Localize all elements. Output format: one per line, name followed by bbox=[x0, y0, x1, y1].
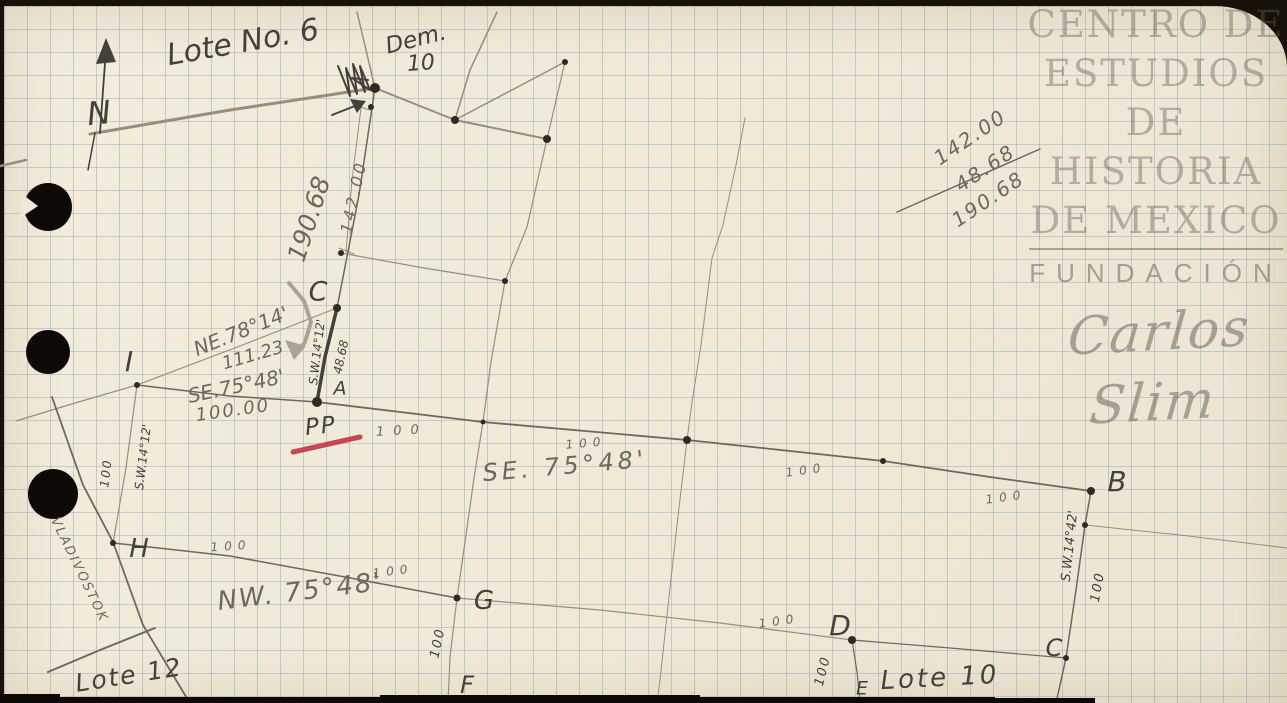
label-100-seg2: 100 bbox=[785, 461, 827, 479]
label-100-gd: 100 bbox=[758, 612, 800, 630]
label-lote-no-6: Lote No. 6 bbox=[165, 15, 322, 71]
label-100-hg2: 100 bbox=[372, 563, 414, 580]
label-point-g: G bbox=[474, 588, 494, 614]
scanned-field-note-page: Lote No. 6NDem.10190.68142.00NE.78°14'11… bbox=[0, 0, 1287, 703]
label-100-gf: 100 bbox=[428, 627, 447, 660]
label-point-h: H bbox=[129, 536, 149, 562]
label-point-e: E bbox=[856, 680, 868, 699]
label-point-c-top: C bbox=[309, 279, 328, 306]
label-100-de: 100 bbox=[813, 654, 833, 687]
label-190-68: 190.68 bbox=[284, 174, 335, 265]
label-point-f: F bbox=[460, 673, 474, 697]
label-nw-75-48: NW. 75°48' bbox=[216, 569, 384, 615]
label-point-b: B bbox=[1107, 468, 1126, 496]
label-lote-12: Lote 12 bbox=[74, 654, 185, 696]
label-100-seg3: 100 bbox=[985, 488, 1027, 506]
label-48-68: 48.68 bbox=[332, 339, 351, 375]
label-dem-10: 10 bbox=[406, 52, 435, 76]
label-100-pp: 100 bbox=[376, 423, 428, 439]
label-point-i: I bbox=[125, 348, 133, 376]
label-sw-14-12-ca: S.W.14°12' bbox=[307, 319, 327, 386]
label-100-ih: 100 bbox=[98, 458, 113, 488]
label-se-75-48-main: SE. 75°48' bbox=[482, 447, 649, 485]
label-north-n: N bbox=[85, 96, 112, 130]
label-100-hg1: 100 bbox=[210, 539, 252, 554]
label-sw-14-42: S.W.14°42' bbox=[1060, 510, 1080, 582]
label-point-c-bottom: C bbox=[1046, 636, 1063, 660]
label-sw-14-12-ih: S.W.14°12' bbox=[133, 424, 153, 491]
label-100-seg1: 100 bbox=[565, 435, 607, 451]
label-lote-10: Lote 10 bbox=[880, 662, 1000, 694]
annotation-layer: Lote No. 6NDem.10190.68142.00NE.78°14'11… bbox=[0, 0, 1287, 703]
label-142-00: 142.00 bbox=[338, 159, 369, 235]
label-100-bc: 100 bbox=[1089, 571, 1107, 604]
label-pp: PP bbox=[304, 414, 338, 440]
label-point-d: D bbox=[829, 612, 851, 640]
label-vladivostok: VLADIVOSTOK bbox=[48, 515, 110, 624]
label-point-a: A bbox=[334, 380, 347, 399]
